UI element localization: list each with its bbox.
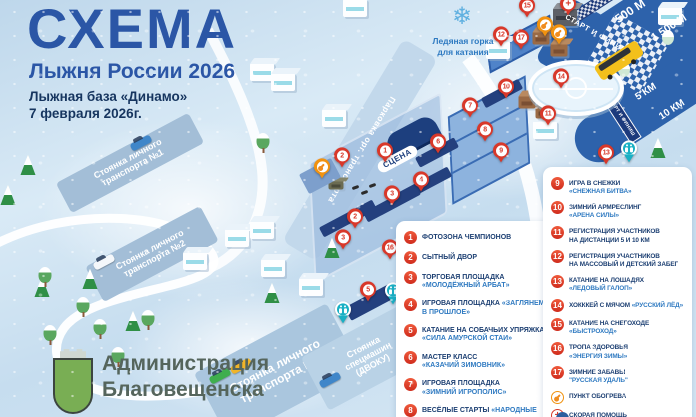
- building: [225, 229, 249, 247]
- ice-slide-label: для катания: [418, 47, 508, 57]
- map-marker-3: 3: [335, 229, 351, 245]
- round-tree: [44, 325, 57, 341]
- restroom-icon: [344, 308, 347, 313]
- legend-item-line: «КАЗАЧИЙ ЗИМОВНИК»: [422, 362, 505, 371]
- snowflake-icon: ❄: [452, 2, 472, 31]
- legend-text-segment: "РУССКАЯ УДАЛЬ": [569, 377, 628, 384]
- legend-panel-right: 9ИГРА В СНЕЖКИ «СНЕЖНАЯ БИТВА»10ЗИМНИЙ А…: [543, 167, 692, 417]
- legend-item-number: 1: [404, 231, 417, 244]
- legend-item-line: ВЕСЁЛЫЕ СТАРТЫ «НАРОДНЫЕ: [422, 407, 537, 416]
- conifer-tree: [651, 138, 666, 158]
- legend-item-line: НА ДИСТАНЦИИ 5 И 10 КМ: [569, 237, 660, 245]
- legend-text-segment: «БЫСТРОХОД»: [569, 328, 617, 335]
- legend-text-segment: ТРОПА ЗДОРОВЬЯ: [569, 344, 628, 351]
- legend-text-segment: РЕГИСТРАЦИЯ УЧАСТНИКОВ: [569, 228, 660, 235]
- legend-panel-left: 1ФОТОЗОНА ЧЕМПИОНОВ2СЫТНЫЙ ДВОР3ТОРГОВАЯ…: [396, 221, 559, 417]
- legend-item-line: ЗИМНИЕ ЗАБАВЫ "РУССКАЯ УДАЛЬ": [569, 369, 684, 385]
- legend-item-number: 8: [404, 404, 417, 417]
- organization-name: Благовещенска: [102, 378, 264, 402]
- round-tree: [142, 310, 155, 326]
- map-marker-5: 5: [360, 281, 376, 297]
- legend-item: 10ЗИМНИЙ АРМРЕСЛИНГ «АРЕНА СИЛЫ»: [551, 201, 684, 220]
- round-tree: [257, 133, 270, 149]
- legend-item-line: ИГРОВАЯ ПЛОЩАДКА: [422, 380, 506, 389]
- legend-item-label: СЫТНЫЙ ДВОР: [422, 251, 477, 262]
- legend-item-label: КАТАНИЕ НА ЛОШАДЯХ«ЛЕДОВЫЙ ГАЛОП»: [569, 275, 644, 294]
- legend-item-label: ПУНКТ ОБОГРЕВА: [569, 391, 626, 402]
- heat-icon: [317, 161, 328, 172]
- map-marker-number: 3: [338, 232, 349, 243]
- city-coat-of-arms: [52, 349, 94, 417]
- map-marker-2: 2: [347, 208, 363, 224]
- legend-item: 15КАТАНИЕ НА СНЕГОХОДЕ «БЫСТРОХОД»: [551, 318, 684, 337]
- building: [322, 109, 346, 127]
- legend-item-line: ТОРГОВАЯ ПЛОЩАДКА: [422, 274, 510, 283]
- map-marker-number: 6: [433, 136, 444, 147]
- map-marker-17: 17: [513, 29, 529, 45]
- round-tree: [94, 319, 107, 335]
- legend-text-segment: РЕГИСТРАЦИЯ УЧАСТНИКОВ: [569, 253, 660, 260]
- legend-item-number: 5: [404, 324, 417, 337]
- legend-item-label: ХОКККЕЙ С МЯЧОМ «РУССКИЙ ЛЁД»: [569, 299, 683, 310]
- map-marker-6: 6: [430, 133, 446, 149]
- legend-text-segment: «СНЕЖНАЯ БИТВА»: [569, 188, 631, 195]
- building: [299, 278, 323, 296]
- legend-text-segment: МАСТЕР КЛАСС: [422, 354, 477, 361]
- legend-item: 2СЫТНЫЙ ДВОР: [404, 251, 551, 264]
- legend-text-segment: «НАРОДНЫЕ: [491, 407, 537, 414]
- legend-text-segment: «ЛЕДОВЫЙ ГАЛОП»: [569, 285, 632, 292]
- map-marker-number: 13: [601, 147, 612, 158]
- map-marker-14: 14: [553, 68, 569, 84]
- legend-item-line: ПУНКТ ОБОГРЕВА: [569, 393, 626, 401]
- thermometer-icon: [319, 164, 325, 170]
- legend-item-label: ТОРГОВАЯ ПЛОЩАДКА«МОЛОДЁЖНЫЙ АРБАТ»: [422, 271, 510, 291]
- map-marker-number: 9: [496, 145, 507, 156]
- map-marker-number: 14: [556, 71, 567, 82]
- round-tree: [77, 297, 90, 313]
- legend-item-number: 3: [404, 271, 417, 284]
- map-marker-12: 12: [493, 26, 509, 42]
- legend-text-segment: НА ДИСТАНЦИИ 5 И 10 КМ: [569, 237, 650, 244]
- legend-text-segment: «ЗАГЛЯНЕМ: [502, 300, 545, 307]
- map-marker-13: 13: [598, 144, 614, 160]
- legend-item: 12РЕГИСТРАЦИЯ УЧАСТНИКОВНА МАССОВЫЙ И ДЕ…: [551, 250, 684, 269]
- legend-item-label: ВЕСЁЛЫЕ СТАРТЫ «НАРОДНЫЕ: [422, 404, 537, 415]
- legend-text-segment: КАТАНИЕ НА СОБАЧЬИХ УПРЯЖКАХ: [422, 327, 549, 334]
- legend-item-line: РЕГИСТРАЦИЯ УЧАСТНИКОВ: [569, 253, 678, 261]
- conifer-tree: [83, 269, 98, 289]
- restroom-icon: [630, 147, 633, 152]
- heat-legend-icon: [551, 391, 564, 404]
- legend-text-segment: ФОТОЗОНА ЧЕМПИОНОВ: [422, 234, 511, 241]
- legend-item-line: В ПРОШЛОЕ»: [422, 309, 545, 318]
- map-marker-number: 1: [380, 145, 391, 156]
- map-marker-number: 17: [516, 32, 527, 43]
- legend-item-number: 10: [551, 201, 564, 214]
- date-line: 7 февраля 2026г.: [29, 106, 142, 121]
- thermometer-icon: [542, 22, 548, 28]
- map-marker-number: 12: [496, 29, 507, 40]
- wc-icon: [624, 143, 635, 154]
- legend-item-label: ЗИМНИЙ АРМРЕСЛИНГ «АРЕНА СИЛЫ»: [569, 201, 684, 220]
- legend-item: 9ИГРА В СНЕЖКИ «СНЕЖНАЯ БИТВА»: [551, 177, 684, 196]
- legend-text-segment: «РУССКИЙ ЛЁД»: [632, 302, 683, 309]
- legend-item-label: ТРОПА ЗДОРОВЬЯ «ЭНЕРГИЯ ЗИМЫ»: [569, 342, 684, 361]
- legend-text-segment: ТОРГОВАЯ ПЛОЩАДКА: [422, 274, 504, 281]
- legend-text-segment: ЗИМНИЕ ЗАБАВЫ: [569, 369, 625, 376]
- legend-item-number: 12: [551, 250, 564, 263]
- building: [250, 221, 274, 239]
- event-map-poster: Парковка орг. транспорта Стоянка личного…: [0, 0, 696, 417]
- building: [261, 259, 285, 277]
- legend-item-number: 2: [404, 251, 417, 264]
- legend-text-segment: «МОЛОДЁЖНЫЙ АРБАТ»: [422, 282, 510, 289]
- legend-item-label: КАТАНИЕ НА СОБАЧЬИХ УПРЯЖКАХ«СИЛА АМУРСК…: [422, 324, 549, 344]
- legend-text-segment: ПУНКТ ОБОГРЕВА: [569, 393, 626, 400]
- thermometer-icon: [555, 394, 561, 400]
- map-marker-number: 2: [337, 150, 348, 161]
- legend-item: +СКОРАЯ ПОМОЩЬ: [551, 409, 684, 417]
- heat-pin: [314, 158, 330, 174]
- legend-item-label: ФОТОЗОНА ЧЕМПИОНОВ: [422, 231, 511, 242]
- legend-item-label: РЕГИСТРАЦИЯ УЧАСТНИКОВНА МАССОВЫЙ И ДЕТС…: [569, 250, 678, 269]
- map-marker-3: 3: [384, 185, 400, 201]
- legend-text-segment: КАТАНИЕ НА ЛОШАДЯХ: [569, 277, 644, 284]
- legend-item-line: «ЛЕДОВЫЙ ГАЛОП»: [569, 285, 644, 293]
- legend-item-label: ИГРОВАЯ ПЛОЩАДКА «ЗАГЛЯНЕМВ ПРОШЛОЕ»: [422, 298, 545, 318]
- map-marker-2: 2: [334, 147, 350, 163]
- legend-item-label: ЗИМНИЕ ЗАБАВЫ "РУССКАЯ УДАЛЬ": [569, 366, 684, 385]
- legend-text-segment: «АРЕНА СИЛЫ»: [569, 212, 619, 219]
- map-marker-number: 5: [363, 284, 374, 295]
- map-marker-number: 3: [387, 188, 398, 199]
- legend-item-line: ТРОПА ЗДОРОВЬЯ «ЭНЕРГИЯ ЗИМЫ»: [569, 344, 684, 360]
- legend-item-label: РЕГИСТРАЦИЯ УЧАСТНИКОВНА ДИСТАНЦИИ 5 И 1…: [569, 226, 660, 245]
- organization-name: Администрация: [102, 352, 269, 376]
- crown-icon: [60, 349, 86, 358]
- legend-item: 3ТОРГОВАЯ ПЛОЩАДКА«МОЛОДЁЖНЫЙ АРБАТ»: [404, 271, 551, 291]
- map-marker-9: 9: [493, 142, 509, 158]
- round-tree: [39, 267, 52, 283]
- conifer-tree: [1, 185, 16, 205]
- wc-icon: [338, 304, 349, 315]
- map-marker-number: 16: [385, 242, 396, 253]
- heat-pin: [551, 24, 567, 40]
- legend-text-segment: ХОКККЕЙ С МЯЧОМ: [569, 302, 630, 309]
- legend-text-segment: КАТАНИЕ НА СНЕГОХОДЕ: [569, 320, 649, 327]
- legend-item-line: ХОКККЕЙ С МЯЧОМ «РУССКИЙ ЛЁД»: [569, 302, 683, 310]
- heat-icon: [540, 19, 551, 30]
- legend-item: 17ЗИМНИЕ ЗАБАВЫ "РУССКАЯ УДАЛЬ": [551, 366, 684, 385]
- legend-text-segment: В ПРОШЛОЕ»: [422, 309, 470, 316]
- restroom-icon: [339, 308, 342, 313]
- legend-item: 6МАСТЕР КЛАСС«КАЗАЧИЙ ЗИМОВНИК»: [404, 351, 551, 371]
- venue-line: Лыжная база «Динамо»: [29, 89, 187, 104]
- legend-text-segment: НА МАССОВЫЙ И ДЕТСКИЙ ЗАБЕГ: [569, 261, 678, 268]
- restroom-icon: [389, 289, 392, 294]
- legend-item-label: МАСТЕР КЛАСС«КАЗАЧИЙ ЗИМОВНИК»: [422, 351, 505, 371]
- legend-item: ПУНКТ ОБОГРЕВА: [551, 391, 684, 404]
- legend-item-number: 14: [551, 299, 564, 312]
- map-marker-number: 10: [501, 81, 512, 92]
- legend-text-segment: «ЗИМНИЙ ИГРОПОЛИС»: [422, 389, 506, 396]
- legend-item: 1ФОТОЗОНА ЧЕМПИОНОВ: [404, 231, 551, 244]
- legend-item-label: КАТАНИЕ НА СНЕГОХОДЕ «БЫСТРОХОД»: [569, 318, 684, 337]
- event-name: Лыжня России 2026: [29, 60, 235, 84]
- building: [271, 73, 295, 91]
- legend-item: 4ИГРОВАЯ ПЛОЩАДКА «ЗАГЛЯНЕМВ ПРОШЛОЕ»: [404, 298, 551, 318]
- legend-item-line: СКОРАЯ ПОМОЩЬ: [569, 412, 627, 417]
- legend-item: 11РЕГИСТРАЦИЯ УЧАСТНИКОВНА ДИСТАНЦИИ 5 И…: [551, 226, 684, 245]
- legend-text-segment: СЫТНЫЙ ДВОР: [422, 254, 477, 261]
- legend-item-line: «СИЛА АМУРСКОЙ СТАИ»: [422, 335, 549, 344]
- building: [183, 252, 207, 270]
- legend-item-line: ФОТОЗОНА ЧЕМПИОНОВ: [422, 234, 511, 243]
- legend-item: 16ТРОПА ЗДОРОВЬЯ «ЭНЕРГИЯ ЗИМЫ»: [551, 342, 684, 361]
- legend-text-segment: «КАЗАЧИЙ ЗИМОВНИК»: [422, 362, 505, 369]
- legend-item-line: НА МАССОВЫЙ И ДЕТСКИЙ ЗАБЕГ: [569, 261, 678, 269]
- legend-text-segment: «СИЛА АМУРСКОЙ СТАИ»: [422, 335, 512, 342]
- legend-item-number: 13: [551, 275, 564, 288]
- map-marker-number: 8: [480, 124, 491, 135]
- map-marker-11: 11: [540, 105, 556, 121]
- thermometer-icon: [556, 30, 562, 36]
- map-marker-number: 4: [416, 174, 427, 185]
- legend-item: 7ИГРОВАЯ ПЛОЩАДКА«ЗИМНИЙ ИГРОПОЛИС»: [404, 378, 551, 398]
- medical-icon: +: [563, 0, 574, 9]
- legend-text-segment: ЗИМНИЙ АРМРЕСЛИНГ: [569, 204, 641, 211]
- legend-text-segment: «ЭНЕРГИЯ ЗИМЫ»: [569, 353, 627, 360]
- legend-item: 5КАТАНИЕ НА СОБАЧЬИХ УПРЯЖКАХ«СИЛА АМУРС…: [404, 324, 551, 344]
- legend-item-label: ИГРА В СНЕЖКИ «СНЕЖНАЯ БИТВА»: [569, 177, 684, 196]
- shield-icon: [53, 358, 93, 414]
- legend-text-segment: ИГРОВАЯ ПЛОЩАДКА: [422, 300, 500, 307]
- legend-item-line: РЕГИСТРАЦИЯ УЧАСТНИКОВ: [569, 228, 660, 236]
- legend-item-line: ИГРА В СНЕЖКИ «СНЕЖНАЯ БИТВА»: [569, 180, 684, 196]
- legend-item: 13КАТАНИЕ НА ЛОШАДЯХ«ЛЕДОВЫЙ ГАЛОП»: [551, 275, 684, 294]
- map-marker-number: 15: [522, 0, 533, 11]
- conifer-tree: [126, 311, 141, 331]
- wc-pin: [621, 140, 637, 156]
- legend-item-label: ИГРОВАЯ ПЛОЩАДКА«ЗИМНИЙ ИГРОПОЛИС»: [422, 378, 506, 398]
- poster-title: СХЕМА: [27, 0, 237, 61]
- legend-item-number: 9: [551, 177, 564, 190]
- legend-item-line: «МОЛОДЁЖНЫЙ АРБАТ»: [422, 282, 510, 291]
- legend-item-number: 15: [551, 318, 564, 331]
- wc-pin: [335, 301, 351, 317]
- legend-item-line: СЫТНЫЙ ДВОР: [422, 254, 477, 263]
- map-marker-8: 8: [477, 121, 493, 137]
- conifer-tree: [21, 155, 36, 175]
- legend-item-number: 4: [404, 298, 417, 311]
- map-marker-10: 10: [498, 78, 514, 94]
- legend-item: 14ХОКККЕЙ С МЯЧОМ «РУССКИЙ ЛЁД»: [551, 299, 684, 312]
- map-marker-7: 7: [462, 97, 478, 113]
- legend-item-line: ЗИМНИЙ АРМРЕСЛИНГ «АРЕНА СИЛЫ»: [569, 204, 684, 220]
- legend-item-line: ИГРОВАЯ ПЛОЩАДКА «ЗАГЛЯНЕМ: [422, 300, 545, 309]
- legend-item-number: 6: [404, 351, 417, 364]
- legend-text-segment: ИГРОВАЯ ПЛОЩАДКА: [422, 380, 500, 387]
- map-marker-number: 11: [543, 108, 554, 119]
- legend-text-segment: СКОРАЯ ПОМОЩЬ: [569, 412, 627, 417]
- legend-item-line: «ЗИМНИЙ ИГРОПОЛИС»: [422, 389, 506, 398]
- map-marker-number: 2: [350, 211, 361, 222]
- map-marker-1: 1: [377, 142, 393, 158]
- map-marker-number: 7: [465, 100, 476, 111]
- legend-item-label: СКОРАЯ ПОМОЩЬ: [569, 409, 627, 417]
- legend-item: 8ВЕСЁЛЫЕ СТАРТЫ «НАРОДНЫЕ: [404, 404, 551, 417]
- legend-item-line: МАСТЕР КЛАСС: [422, 354, 505, 363]
- legend-item-number: 17: [551, 366, 564, 379]
- legend-text-segment: ВЕСЁЛЫЕ СТАРТЫ: [422, 407, 489, 414]
- legend-text-segment: ИГРА В СНЕЖКИ: [569, 180, 620, 187]
- legend-item-number: 11: [551, 226, 564, 239]
- map-marker-4: 4: [413, 171, 429, 187]
- restroom-icon: [625, 147, 628, 152]
- conifer-tree: [265, 283, 280, 303]
- building: [343, 0, 367, 17]
- legend-item-number: 7: [404, 378, 417, 391]
- legend-item-number: 16: [551, 342, 564, 355]
- legend-item-line: КАТАНИЕ НА СНЕГОХОДЕ «БЫСТРОХОД»: [569, 320, 684, 336]
- heat-icon: [554, 27, 565, 38]
